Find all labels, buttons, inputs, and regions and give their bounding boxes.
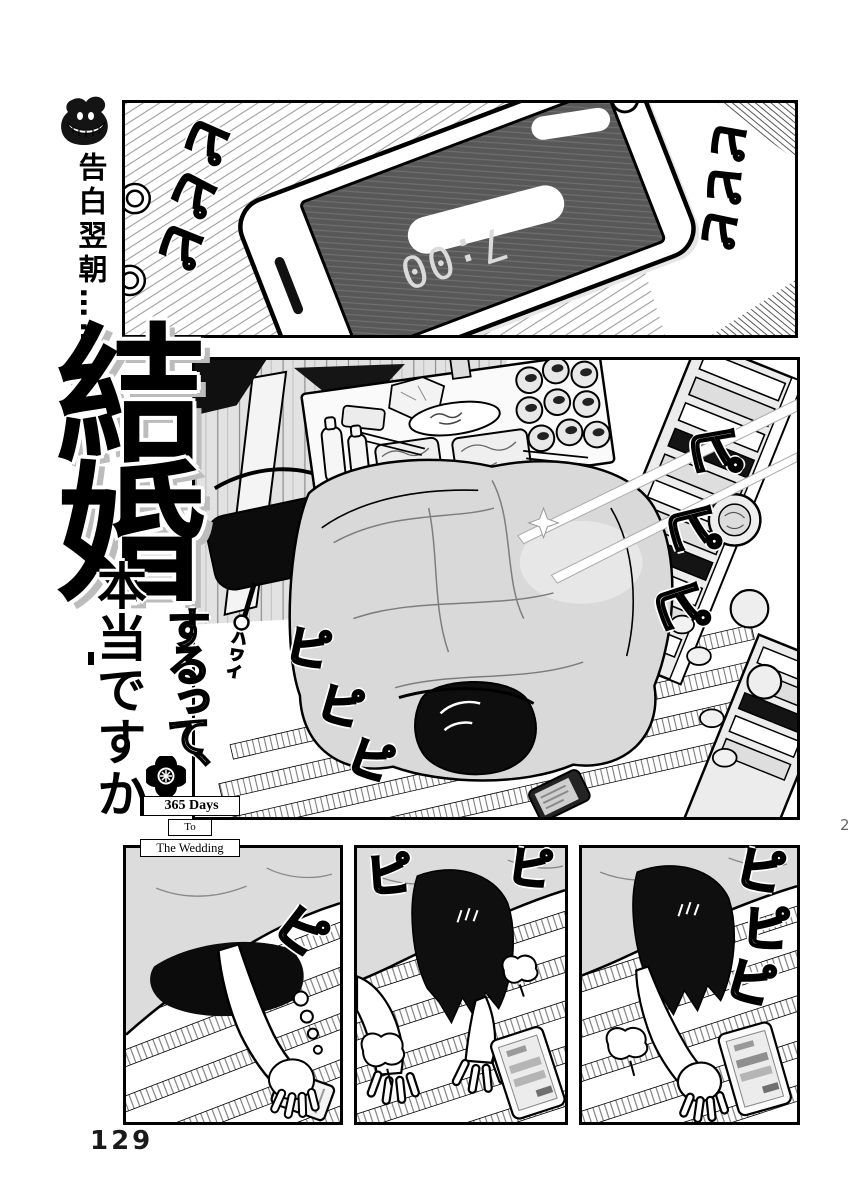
page-number: 129 bbox=[90, 1126, 153, 1156]
logo-line-1: 365 Days bbox=[140, 796, 240, 816]
reaching-arm-scene bbox=[126, 848, 340, 1122]
fx-pi: ピ bbox=[696, 206, 741, 251]
mascot-monster-icon bbox=[58, 94, 114, 152]
fx-pi: ピ bbox=[505, 845, 555, 895]
logo-line-3: The Wedding bbox=[140, 839, 240, 857]
margin-caption: 告白翌朝…… bbox=[70, 152, 112, 412]
series-logo: 365 Days To The Wedding bbox=[140, 796, 240, 860]
title-serif-part: 本当ですか bbox=[82, 560, 154, 820]
phone bbox=[717, 1021, 792, 1117]
fx-pi: ピ bbox=[706, 119, 750, 163]
fx-pi: ピ bbox=[732, 844, 789, 901]
manga-page: 告白翌朝…… bbox=[0, 0, 850, 1200]
phone-on-table bbox=[342, 405, 386, 430]
logo-line-2: To bbox=[168, 819, 212, 836]
panel-bottom-1 bbox=[123, 845, 343, 1125]
flower-ornament-icon bbox=[146, 756, 186, 796]
fx-pi: ピ bbox=[282, 624, 334, 676]
storyboard-page-marker: 2 bbox=[840, 816, 850, 834]
title-dash bbox=[88, 434, 94, 447]
fx-pi: ピ bbox=[740, 904, 791, 955]
phone bbox=[489, 1025, 565, 1120]
fx-pi: ピ bbox=[682, 420, 745, 483]
fx-pi: ピ bbox=[364, 850, 413, 899]
glass bbox=[450, 360, 471, 379]
fx-pi: ピ bbox=[702, 164, 744, 206]
